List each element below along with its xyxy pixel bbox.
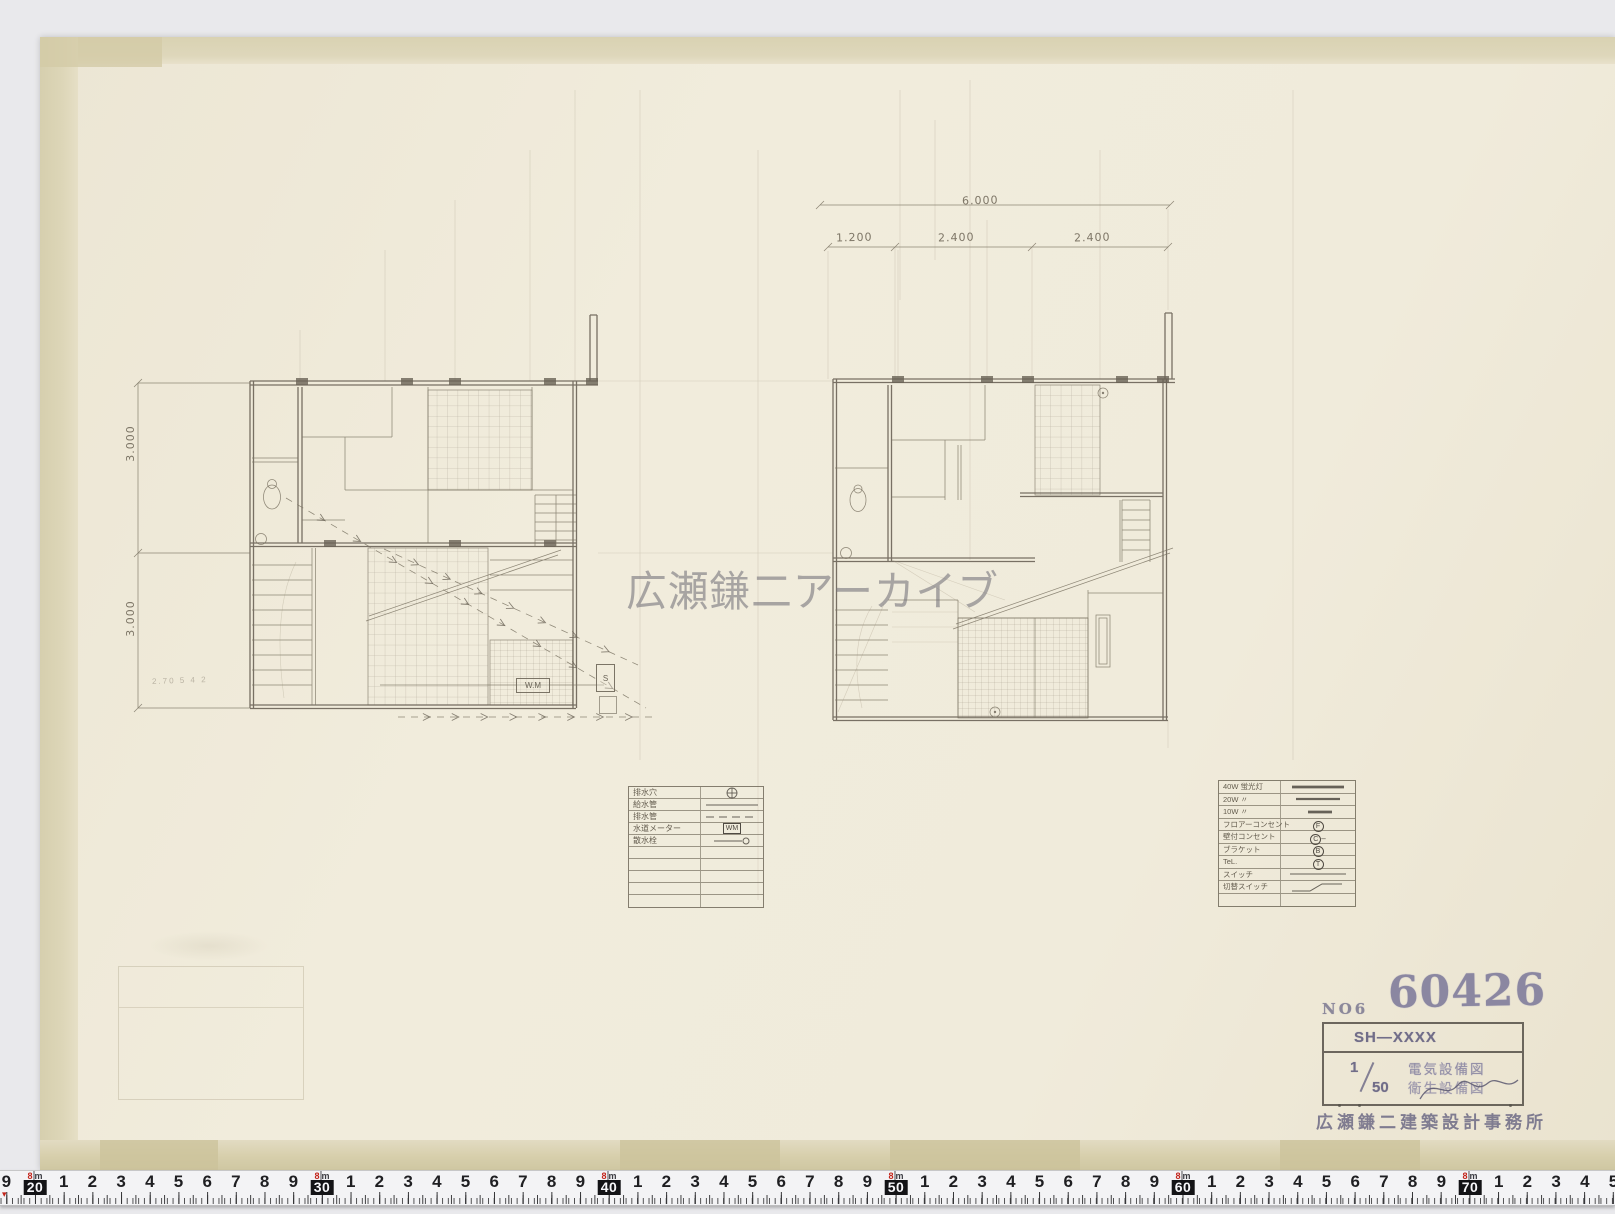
tape-cm-number: 1 — [59, 1170, 68, 1190]
legend-electrical: 40W 蛍光灯20W 〃10W 〃フロアーコンセントF壁付コンセントC–ブラケッ… — [1218, 780, 1356, 907]
tape-cm-number: 2 — [662, 1170, 671, 1190]
tape-piece — [620, 1140, 780, 1170]
legend-row: 切替スイッチ — [1219, 881, 1355, 894]
tape-cm-number: 5 — [174, 1170, 183, 1190]
tape-cm-number: 4 — [432, 1170, 441, 1190]
fixture-box-s: S — [596, 664, 615, 692]
archive-watermark: 広瀬鎌二アーカイブ — [626, 558, 999, 619]
tape-cm-number: 4 — [1006, 1170, 1015, 1190]
tape-cm-number: 8 — [1408, 1170, 1417, 1190]
legend-row: 排水管 — [629, 811, 763, 823]
tape-cm-number: 2 — [1523, 1170, 1532, 1190]
tape-cm-number: 3 — [977, 1170, 986, 1190]
tape-piece — [1280, 1140, 1420, 1170]
legend-row — [629, 859, 763, 871]
dim-label-2400-b: 2.400 — [1074, 231, 1111, 245]
legend-row: フロアーコンセントF — [1219, 819, 1355, 832]
office-stamp: 広瀬鎌二建築設計事務所 — [1316, 1108, 1547, 1133]
tape-cm-number: 6 — [1350, 1170, 1359, 1190]
tape-cm-number: 5 — [461, 1170, 470, 1190]
dim-label-1200: 1.200 — [836, 231, 873, 245]
dim-label-3000-upper: 3.000 — [124, 425, 137, 462]
tape-cm-number: 8 — [260, 1170, 269, 1190]
paper-bottom-edge — [40, 1140, 1615, 1170]
scale-numerator: 1 — [1350, 1059, 1358, 1076]
legend-row: スイッチ — [1219, 869, 1355, 882]
tape-cm-number: 8 — [834, 1170, 843, 1190]
tape-cm-number: 7 — [805, 1170, 814, 1190]
tape-cm-number: 9 — [289, 1170, 298, 1190]
dim-label-2400-a: 2.400 — [938, 231, 975, 245]
archive-number-stamp: 60426 — [1388, 969, 1547, 1016]
tape-piece — [100, 1140, 218, 1170]
tape-cm-number: 2 — [88, 1170, 97, 1190]
tape-cm-number: 9 — [1437, 1170, 1446, 1190]
legend-row — [1219, 894, 1355, 907]
tape-cm-number: 6 — [1063, 1170, 1072, 1190]
pencil-annotation: 2.70 5 4 2 — [152, 675, 208, 686]
legend-plumbing: 排水穴給水管排水管水道メーターWM散水栓 — [628, 786, 764, 908]
tape-cm-number: 4 — [719, 1170, 728, 1190]
tape-cm-number: 1 — [633, 1170, 642, 1190]
legend-row — [629, 895, 763, 907]
tape-cm-number: 7 — [518, 1170, 527, 1190]
tape-cm-number: 3 — [690, 1170, 699, 1190]
legend-row: 水道メーターWM — [629, 823, 763, 835]
tape-piece — [890, 1140, 1080, 1170]
tape-cm-number: 5 — [1322, 1170, 1331, 1190]
scale-denominator: 50 — [1372, 1079, 1389, 1096]
legend-row: 20W 〃 — [1219, 794, 1355, 807]
tape-cm-number: 7 — [1379, 1170, 1388, 1190]
legend-row — [629, 871, 763, 883]
legend-row — [629, 847, 763, 859]
tape-cm-number: 5 — [1035, 1170, 1044, 1190]
tape-cm-number: 2 — [375, 1170, 384, 1190]
sheet-no-label: NO6 — [1322, 1000, 1368, 1018]
tape-cm-number: 9 — [576, 1170, 585, 1190]
tape-cm-number: 9 — [1150, 1170, 1159, 1190]
tape-cm-number: 1 — [920, 1170, 929, 1190]
legend-row: 壁付コンセントC– — [1219, 831, 1355, 844]
tape-cm-number: 6 — [776, 1170, 785, 1190]
tape-cm-number: 9 — [2, 1170, 11, 1190]
tape-cm-number: 1 — [1494, 1170, 1503, 1190]
tape-cm-number: 8 — [547, 1170, 556, 1190]
dim-label-6000: 6.000 — [962, 194, 999, 208]
tape-cm-number: 9 — [863, 1170, 872, 1190]
legend-row: ブラケットB — [1219, 844, 1355, 857]
paper-top-edge — [40, 37, 1615, 64]
fixture-box-small — [599, 696, 617, 714]
tape-cm-number: 6 — [202, 1170, 211, 1190]
legend-row: 散水栓 — [629, 835, 763, 847]
tape-cm-number: 1 — [1207, 1170, 1216, 1190]
tape-cm-number: 4 — [145, 1170, 154, 1190]
tape-cm-number: 3 — [403, 1170, 412, 1190]
tape-cm-number: 8 — [1121, 1170, 1130, 1190]
legend-row: 10W 〃 — [1219, 806, 1355, 819]
paper-left-edge — [40, 37, 78, 1170]
project-code: SH—XXXX — [1324, 1024, 1522, 1053]
tape-cm-number: 2 — [949, 1170, 958, 1190]
water-meter-box: W.M — [516, 678, 550, 693]
tape-cm-number: 4 — [1580, 1170, 1589, 1190]
corner-tape — [40, 37, 162, 67]
tape-cm-number: 5 — [1609, 1170, 1615, 1190]
tape-cm-number: 7 — [231, 1170, 240, 1190]
bleed-through-title-block — [118, 966, 304, 1100]
legend-row: TeL.T — [1219, 856, 1355, 869]
signature — [1412, 1067, 1532, 1107]
title-block: SH—XXXX 1 50 電気設備図 衛生設備図 — [1322, 1022, 1524, 1106]
measuring-tape: ▾ 98m201234567898m301234567898m401234567… — [0, 1170, 1615, 1206]
legend-row: 排水穴 — [629, 787, 763, 799]
tape-cm-number: 5 — [748, 1170, 757, 1190]
tape-cm-number: 4 — [1293, 1170, 1302, 1190]
tape-cm-number: 3 — [1551, 1170, 1560, 1190]
tape-cm-number: 7 — [1092, 1170, 1101, 1190]
tape-cm-number: 3 — [116, 1170, 125, 1190]
legend-row: 給水管 — [629, 799, 763, 811]
legend-row — [629, 883, 763, 895]
tape-cm-number: 2 — [1236, 1170, 1245, 1190]
tape-cm-number: 3 — [1264, 1170, 1273, 1190]
tape-cm-number: 6 — [489, 1170, 498, 1190]
scanned-drawing-sheet: 3.000 3.000 2.70 5 4 2 6.000 1.200 2.400… — [0, 0, 1615, 1214]
dim-label-3000-lower: 3.000 — [124, 600, 137, 637]
legend-row: 40W 蛍光灯 — [1219, 781, 1355, 794]
tape-cm-number: 1 — [346, 1170, 355, 1190]
